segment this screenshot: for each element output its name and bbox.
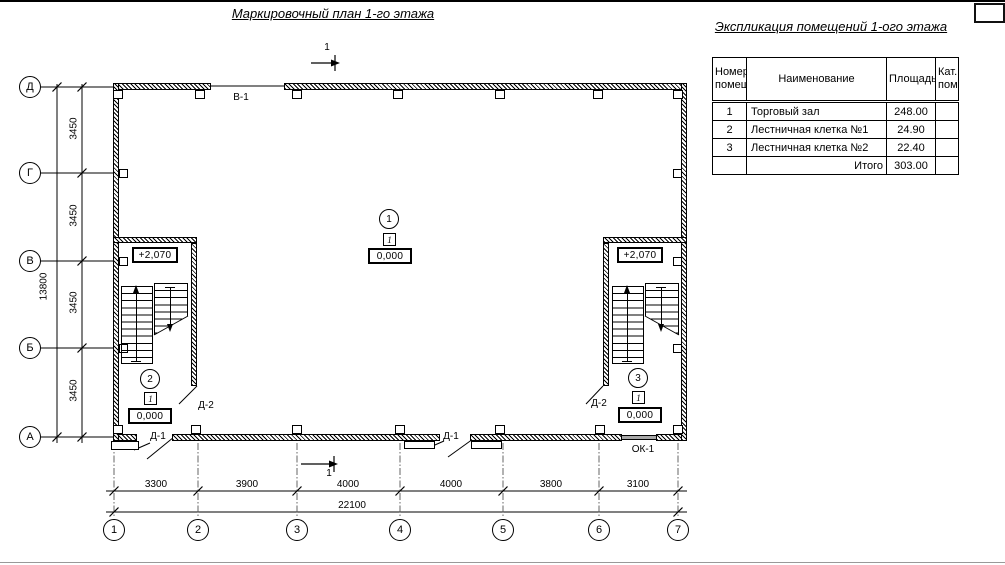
door-label-d2-right: Д-2 [587, 398, 611, 409]
stair-path-start-tick [656, 287, 666, 288]
column-centerlines [114, 443, 678, 517]
axis-bubble-column: 2 [187, 519, 209, 541]
axis-bubble-column: 3 [286, 519, 308, 541]
axis-bubble-row: А [19, 426, 41, 448]
window-label-ok1: ОК-1 [629, 444, 657, 455]
axis-bubble-column: 7 [667, 519, 689, 541]
stair-direction-arrow-up [133, 285, 139, 293]
dimension-total-label: 22100 [330, 500, 374, 511]
level-mark: 0,000 [618, 407, 662, 423]
stair-direction-arrow-up [624, 285, 630, 293]
section-arrows [301, 55, 340, 472]
column-stub [495, 90, 505, 99]
door-label-d1-left: Д-1 [146, 431, 170, 442]
axis-bubble-column: 5 [492, 519, 514, 541]
stair-path-start-tick [622, 361, 632, 362]
column-stub [593, 90, 603, 99]
stairwell-right-side-wall [603, 243, 609, 386]
column-stub [673, 169, 682, 178]
stair-path-line [661, 288, 662, 325]
level-mark: 0,000 [128, 408, 172, 424]
axis-bubble-row: Б [19, 337, 41, 359]
wall-top-right-segment [284, 83, 687, 90]
column-stub [119, 169, 128, 178]
column-stub [495, 425, 505, 434]
stair-cut-lines [154, 316, 679, 335]
door-label-d2-left: Д-2 [194, 400, 218, 411]
dimension-label: 3300 [139, 479, 173, 490]
dimension-label: 3450 [69, 109, 80, 149]
stair-path-line [170, 288, 171, 325]
column-stub [673, 90, 683, 99]
dimension-total-label: 13800 [39, 267, 50, 307]
level-mark: 0,000 [368, 248, 412, 264]
column-stub [292, 90, 302, 99]
door-threshold [471, 441, 502, 449]
wall-bottom-segment-3 [470, 434, 622, 441]
dimension-label: 3450 [69, 371, 80, 411]
room-number-marker: 3 [628, 368, 648, 388]
column-stub [395, 425, 405, 434]
column-stub [195, 90, 205, 99]
column-stub [595, 425, 605, 434]
column-stub [113, 425, 123, 434]
stair-path-line [136, 291, 137, 362]
column-stub [191, 425, 201, 434]
stair-level-mark: +2,070 [132, 247, 178, 263]
column-stub [119, 257, 128, 266]
stair-flight-up-left [121, 286, 153, 364]
wall-top-left-segment [113, 83, 211, 90]
dimension-label: 3100 [621, 479, 655, 490]
drawing-sheet: Маркировочный план 1-го этажа Экспликаци… [0, 0, 1005, 565]
column-stub [673, 344, 682, 353]
stair-path-start-tick [131, 361, 141, 362]
door-threshold [111, 441, 139, 450]
stair-flight-up-right [612, 286, 644, 364]
stairwell-left-top-wall [113, 237, 197, 243]
dimension-label: 3900 [230, 479, 264, 490]
column-stub [292, 425, 302, 434]
dimension-label: 4000 [434, 479, 468, 490]
column-stub [393, 90, 403, 99]
room-number-marker: 2 [140, 369, 160, 389]
axis-bubble-row: Д [19, 76, 41, 98]
stair-level-mark: +2,070 [617, 247, 663, 263]
wall-bottom-segment-2 [172, 434, 440, 441]
axis-bubble-column: 1 [103, 519, 125, 541]
section-mark-label-top: 1 [319, 42, 335, 53]
stair-direction-arrow-down [658, 324, 664, 332]
column-stub [673, 257, 682, 266]
section-mark-label-bottom: 1 [321, 468, 337, 479]
stairwell-left-side-wall [191, 243, 197, 386]
floor-type-marker: 1 [144, 392, 157, 405]
axis-bubble-column: 4 [389, 519, 411, 541]
dimension-label: 3450 [69, 196, 80, 236]
axis-bubble-row: Г [19, 162, 41, 184]
axis-bubble-column: 6 [588, 519, 610, 541]
window-label-v1: В-1 [229, 92, 253, 103]
floor-type-marker: 1 [383, 233, 396, 246]
door-threshold [404, 441, 435, 449]
stair-direction-arrow-down [167, 324, 173, 332]
door-label-d1-mid: Д-1 [439, 431, 463, 442]
room-number-marker: 1 [379, 209, 399, 229]
bottom-window-ok1 [622, 435, 656, 440]
stair-path-start-tick [165, 287, 175, 288]
stairwell-right-top-wall [603, 237, 687, 243]
door-swing-lines [134, 386, 603, 459]
dimension-label: 3450 [69, 283, 80, 323]
column-stub [113, 90, 123, 99]
dimension-label: 4000 [331, 479, 365, 490]
stair-path-line [627, 291, 628, 362]
dimension-label: 3800 [534, 479, 568, 490]
column-stub [673, 425, 683, 434]
floor-type-marker: 1 [632, 391, 645, 404]
